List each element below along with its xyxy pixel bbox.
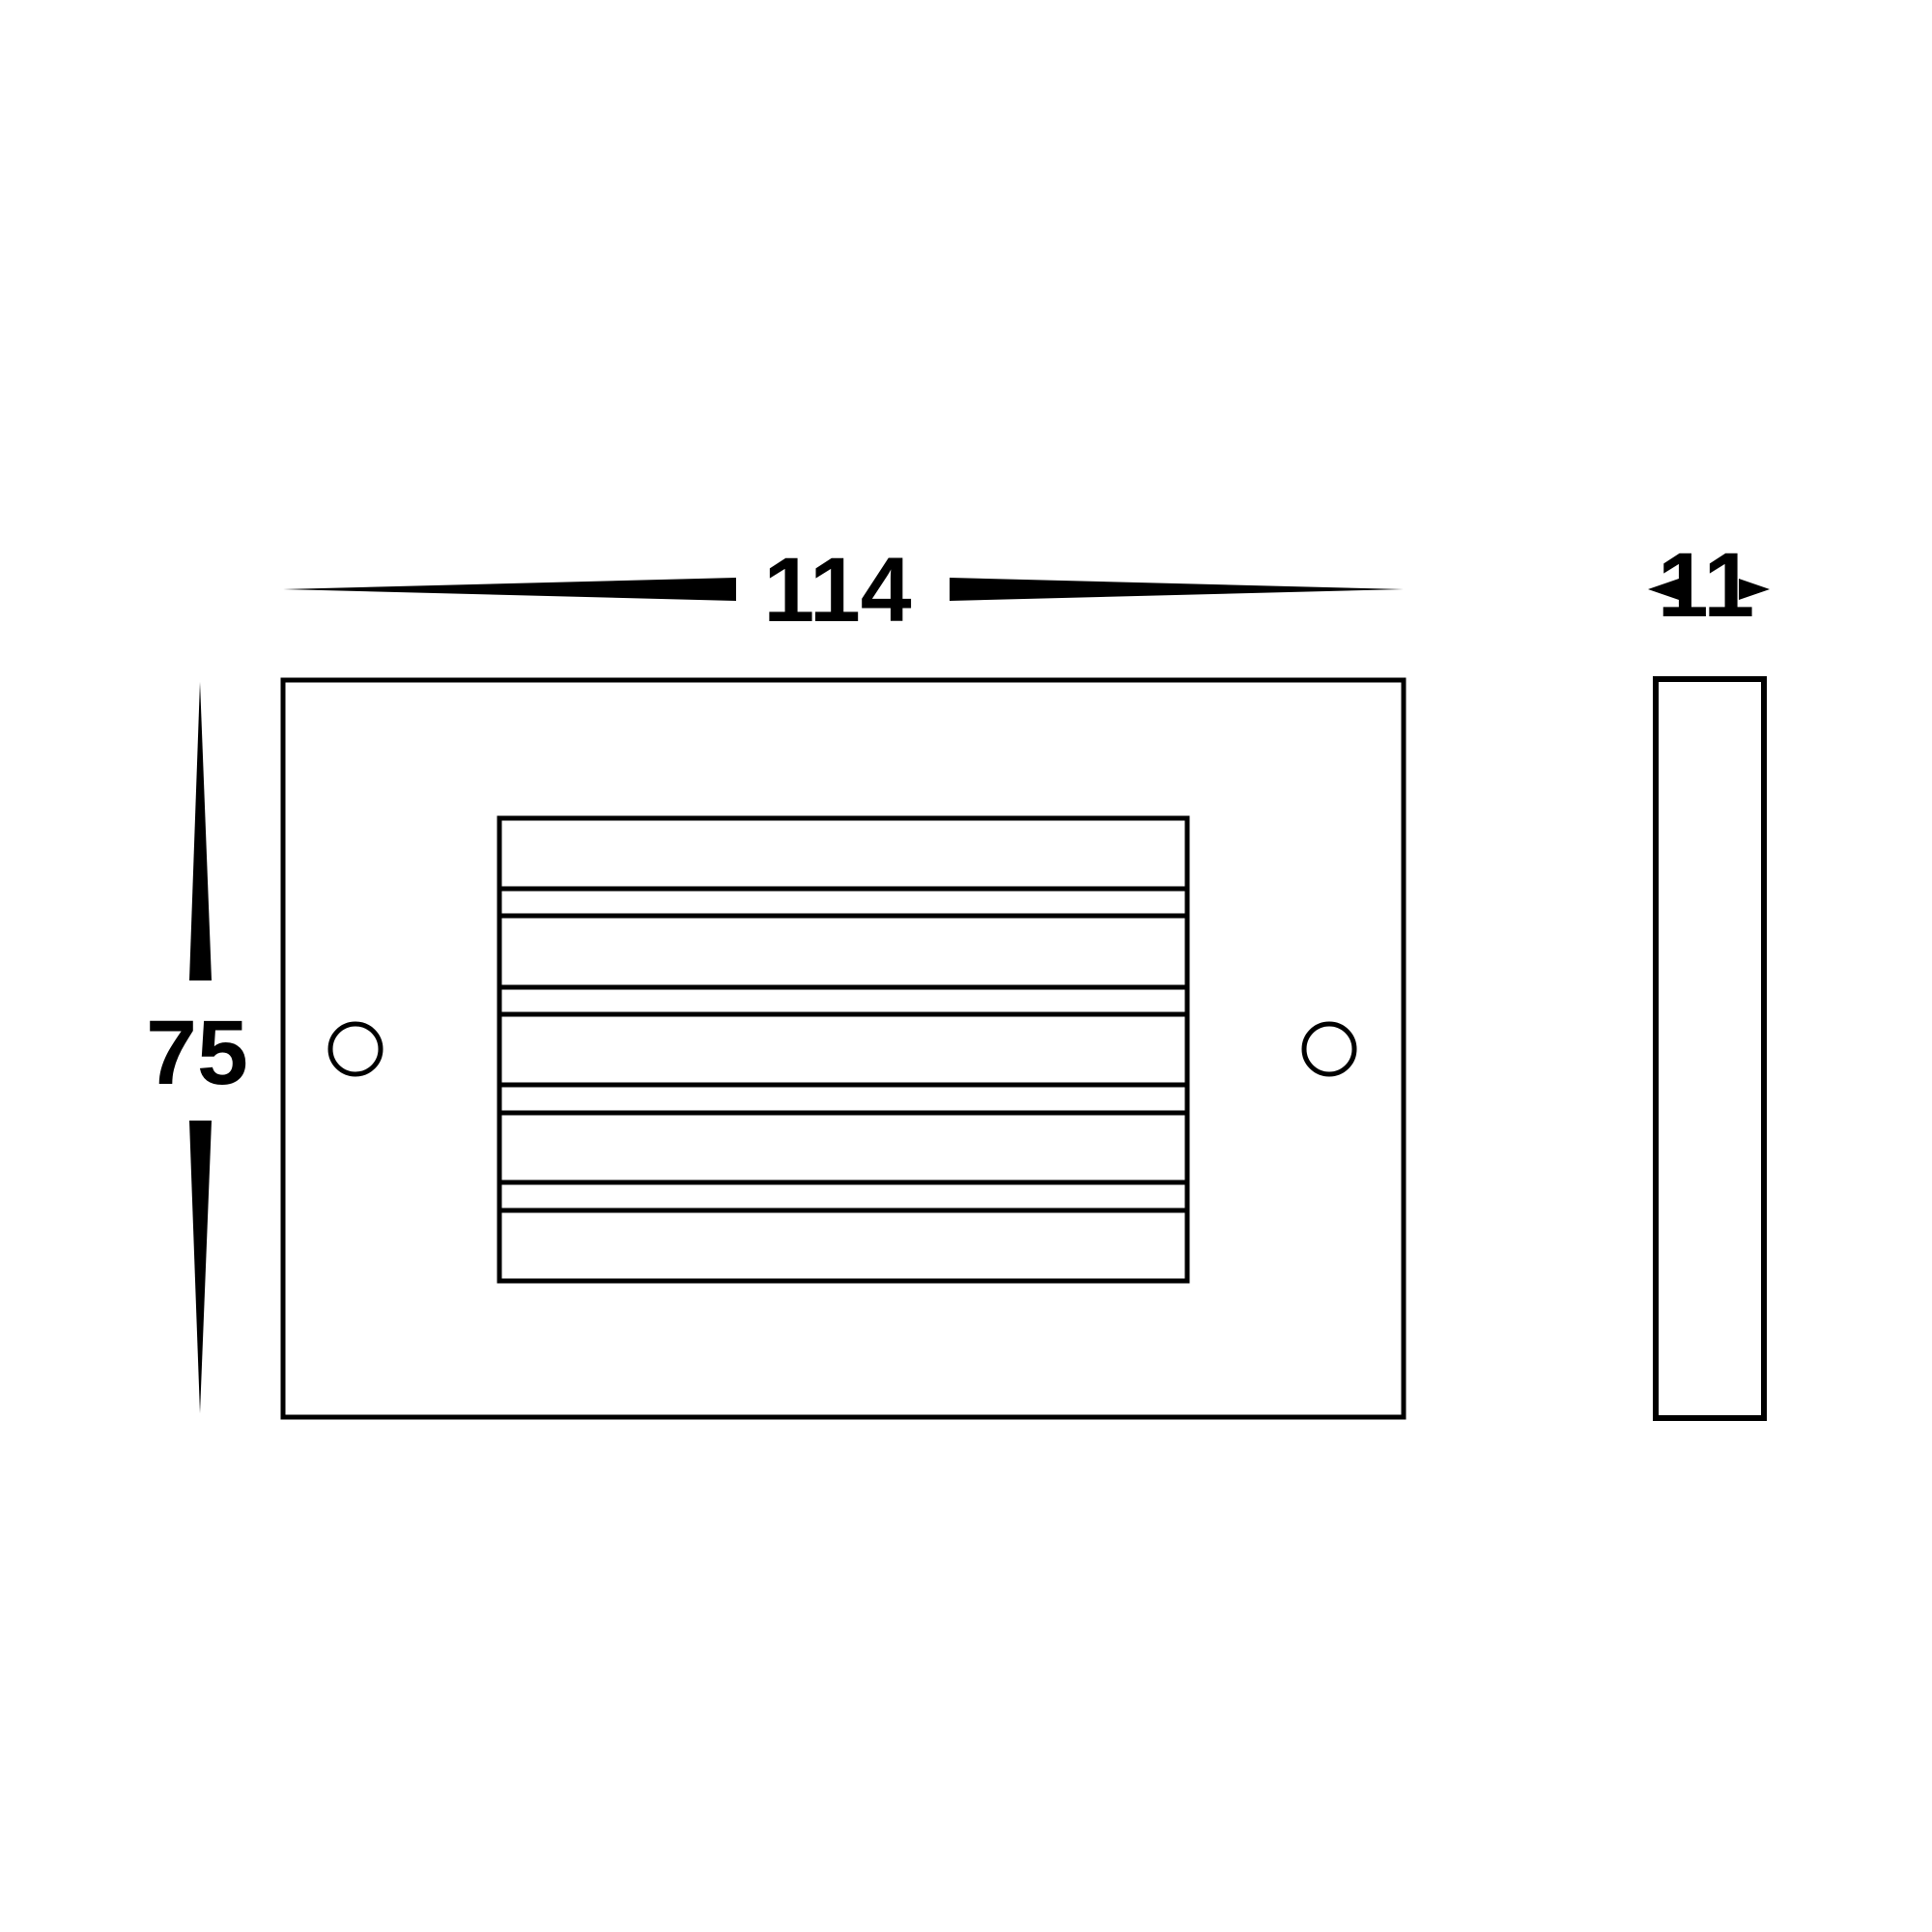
width-dimension-label: 114	[763, 539, 911, 641]
height-dimension: 75	[146, 682, 248, 1413]
dimension-drawing: 114 75 11	[0, 0, 1932, 1932]
louver-grille	[499, 818, 1187, 1281]
width-dim-right-taper	[950, 578, 1404, 601]
front-view	[283, 680, 1404, 1417]
height-dim-top-taper	[189, 682, 212, 980]
depth-dimension-label: 11	[1658, 534, 1754, 637]
height-dimension-label: 75	[146, 1002, 248, 1104]
mounting-hole-right	[1304, 1024, 1354, 1074]
height-dim-bottom-taper	[189, 1121, 212, 1413]
depth-dimension: 11	[1648, 534, 1770, 637]
side-view	[1656, 679, 1764, 1418]
technical-drawing-canvas: 114 75 11	[0, 0, 1932, 1932]
mounting-hole-left	[330, 1024, 381, 1074]
width-dimension: 114	[283, 539, 1404, 641]
width-dim-left-taper	[283, 578, 736, 601]
side-profile-outline	[1656, 679, 1764, 1418]
